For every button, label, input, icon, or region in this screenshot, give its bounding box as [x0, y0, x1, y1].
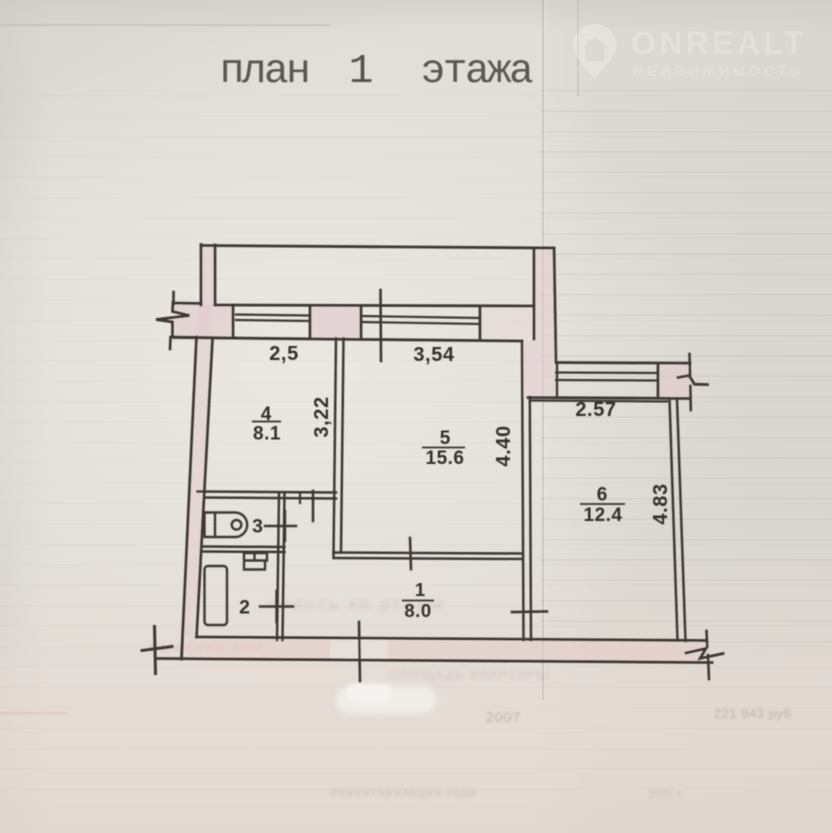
svg-text:2: 2: [239, 597, 250, 619]
svg-text:4.83: 4.83: [650, 483, 672, 524]
svg-text:6: 6: [597, 485, 608, 506]
svg-text:4.40: 4.40: [493, 425, 515, 466]
svg-text:3: 3: [252, 516, 263, 538]
svg-text:5: 5: [440, 428, 451, 449]
svg-text:8.1: 8.1: [253, 424, 281, 445]
svg-text:2,5: 2,5: [269, 343, 299, 365]
svg-text:12.4: 12.4: [584, 505, 623, 526]
svg-text:2.57: 2.57: [575, 399, 616, 421]
svg-text:1: 1: [415, 579, 425, 600]
svg-text:3,22: 3,22: [311, 396, 333, 437]
svg-text:8.0: 8.0: [404, 600, 431, 621]
svg-text:15.6: 15.6: [426, 448, 465, 469]
svg-text:3,54: 3,54: [413, 344, 455, 366]
